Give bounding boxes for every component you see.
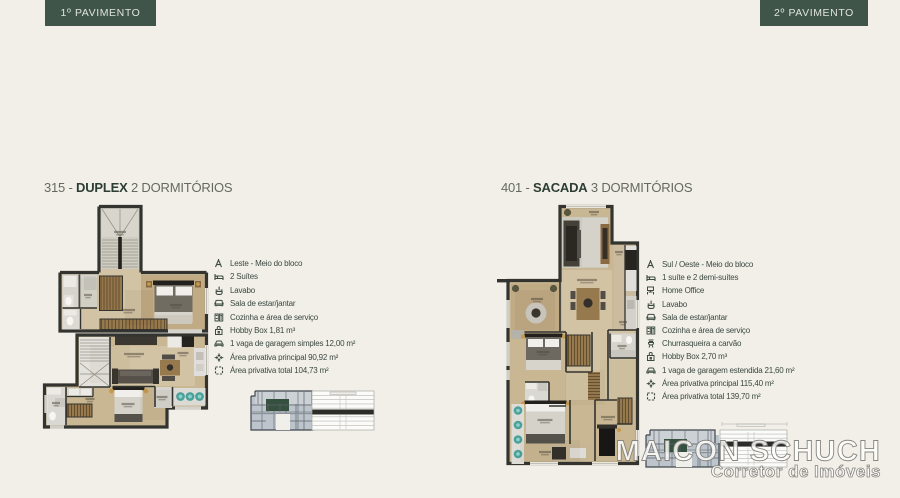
svg-text:Corretor de Imóveis: Corretor de Imóveis [711, 462, 881, 481]
